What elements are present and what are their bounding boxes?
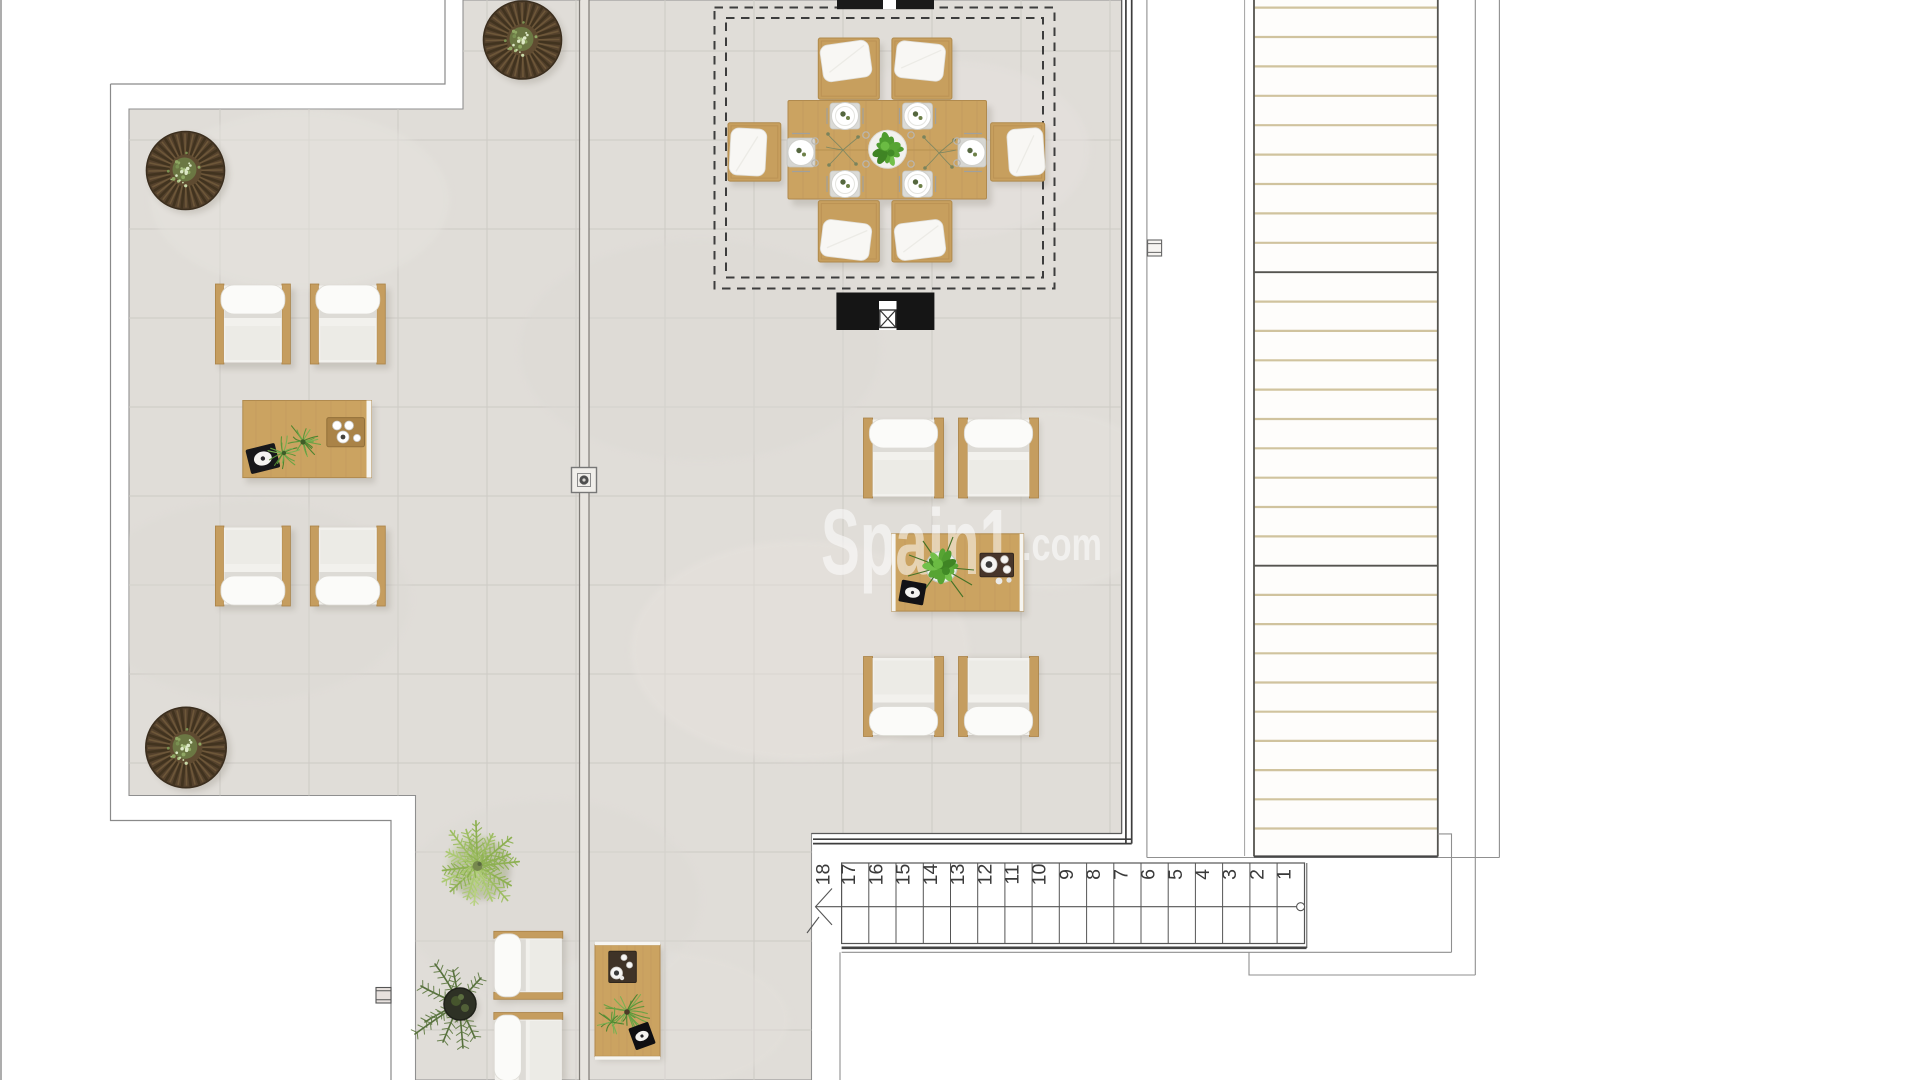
svg-text:9: 9	[1056, 869, 1078, 880]
svg-text:5: 5	[1165, 869, 1187, 880]
svg-text:8: 8	[1083, 869, 1105, 880]
svg-text:18: 18	[813, 864, 835, 886]
svg-text:2: 2	[1247, 869, 1269, 880]
svg-text:4: 4	[1192, 869, 1214, 880]
svg-text:14: 14	[920, 864, 942, 886]
svg-text:12: 12	[974, 864, 996, 886]
svg-text:17: 17	[838, 864, 860, 886]
svg-text:1: 1	[1274, 869, 1296, 880]
svg-text:15: 15	[893, 864, 915, 886]
svg-text:7: 7	[1110, 869, 1132, 880]
svg-text:11: 11	[1002, 864, 1024, 884]
svg-text:Spain1: Spain1	[821, 490, 1012, 594]
svg-text:13: 13	[947, 864, 969, 886]
svg-text:16: 16	[865, 864, 887, 886]
svg-text:.com: .com	[1022, 518, 1102, 570]
svg-text:6: 6	[1138, 869, 1160, 880]
svg-text:10: 10	[1029, 864, 1051, 886]
svg-text:3: 3	[1219, 869, 1241, 880]
